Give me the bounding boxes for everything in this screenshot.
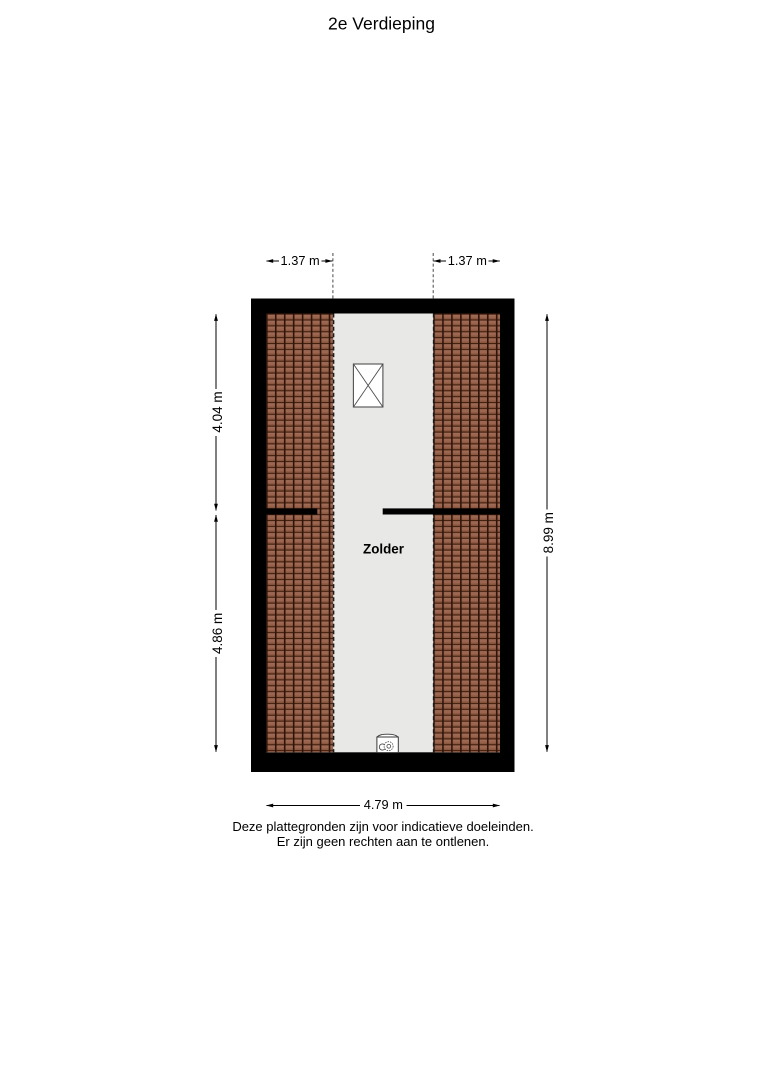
svg-text:4.04 m: 4.04 m (210, 391, 225, 432)
svg-text:1.37 m: 1.37 m (448, 253, 487, 268)
svg-text:1.37 m: 1.37 m (281, 253, 320, 268)
svg-text:4.79 m: 4.79 m (364, 797, 403, 812)
svg-text:Er zijn geen rechten aan te on: Er zijn geen rechten aan te ontlenen. (277, 834, 489, 849)
svg-text:4.86 m: 4.86 m (210, 613, 225, 654)
svg-text:8.99 m: 8.99 m (541, 512, 556, 553)
svg-text:Zolder: Zolder (363, 541, 405, 556)
svg-text:2e Verdieping: 2e Verdieping (328, 14, 435, 34)
svg-text:Deze plattegronden zijn voor i: Deze plattegronden zijn voor indicatieve… (232, 819, 533, 834)
